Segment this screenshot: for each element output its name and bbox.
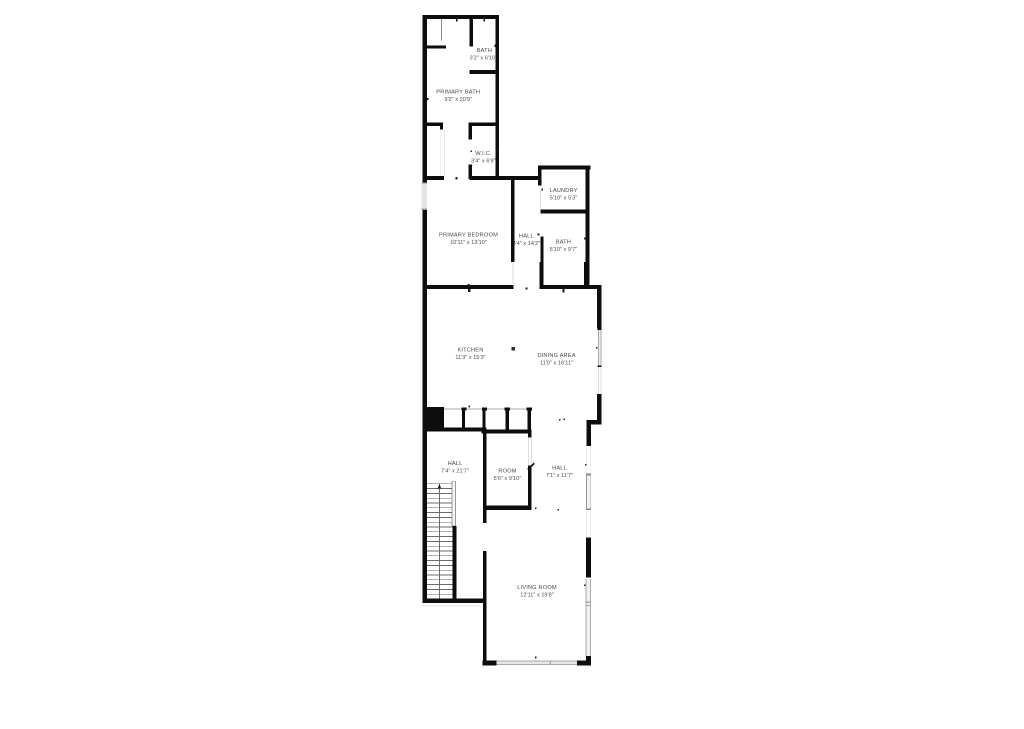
svg-text:5′6″ x 9′10″: 5′6″ x 9′10″ xyxy=(494,476,522,482)
svg-text:PRIMARY BEDROOM: PRIMARY BEDROOM xyxy=(439,233,498,239)
svg-text:7′4″ x 21′7″: 7′4″ x 21′7″ xyxy=(441,469,469,475)
svg-text:HALL: HALL xyxy=(552,466,567,472)
svg-text:ROOM: ROOM xyxy=(498,469,516,475)
svg-text:11′3″ x 15′3″: 11′3″ x 15′3″ xyxy=(455,355,485,361)
svg-text:7′1″ x 11′7″: 7′1″ x 11′7″ xyxy=(546,473,573,479)
svg-text:HALL: HALL xyxy=(519,234,534,240)
svg-text:3′4″ x 6′9″: 3′4″ x 6′9″ xyxy=(471,158,496,164)
svg-text:DINING AREA: DINING AREA xyxy=(537,353,575,359)
svg-text:5′10″ x 5′3″: 5′10″ x 5′3″ xyxy=(550,195,578,201)
svg-text:9′2″ x 20′9″: 9′2″ x 20′9″ xyxy=(444,97,472,103)
svg-text:HALL: HALL xyxy=(448,461,463,467)
svg-text:W.I.C.: W.I.C. xyxy=(475,151,492,157)
svg-text:KITCHEN: KITCHEN xyxy=(457,348,483,354)
svg-text:10′11″ x 13′10″: 10′11″ x 13′10″ xyxy=(450,240,487,246)
svg-text:5′10″ x 9′7″: 5′10″ x 9′7″ xyxy=(550,247,578,253)
svg-text:12′11″ x 19′8″: 12′11″ x 19′8″ xyxy=(520,593,553,599)
svg-text:PRIMARY BATH: PRIMARY BATH xyxy=(436,90,480,96)
svg-text:LAUNDRY: LAUNDRY xyxy=(550,188,578,194)
svg-text:11′0″ x 16′11″: 11′0″ x 16′11″ xyxy=(540,360,573,366)
svg-text:BATH: BATH xyxy=(477,48,492,54)
svg-text:3′2″ x 6′10″: 3′2″ x 6′10″ xyxy=(470,56,498,62)
svg-text:BATH: BATH xyxy=(556,239,571,245)
svg-text:LIVING ROOM: LIVING ROOM xyxy=(517,585,557,591)
svg-text:3′4″ x 14′2″: 3′4″ x 14′2″ xyxy=(513,241,541,247)
